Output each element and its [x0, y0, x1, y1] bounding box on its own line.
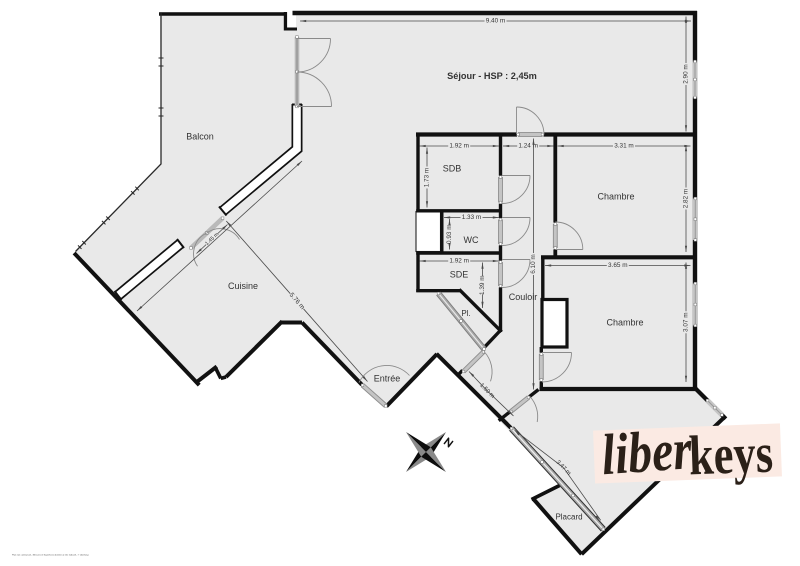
- svg-text:2.82 m: 2.82 m: [683, 189, 690, 209]
- svg-text:Placard: Placard: [555, 513, 582, 522]
- svg-text:6.10 m: 6.10 m: [530, 254, 537, 274]
- svg-text:3.31 m: 3.31 m: [614, 143, 634, 150]
- svg-text:Chambre: Chambre: [597, 192, 634, 202]
- svg-text:1.73 m: 1.73 m: [424, 168, 431, 188]
- svg-text:WC: WC: [464, 235, 479, 245]
- svg-text:3.07 m: 3.07 m: [683, 312, 690, 332]
- svg-text:SDB: SDB: [443, 164, 462, 174]
- svg-text:1.24 m: 1.24 m: [518, 143, 538, 150]
- svg-text:liber: liber: [599, 416, 694, 487]
- svg-text:0.93 m: 0.93 m: [446, 224, 453, 244]
- svg-text:1.33 m: 1.33 m: [462, 214, 482, 221]
- svg-text:keys: keys: [688, 423, 774, 488]
- svg-text:Chambre: Chambre: [606, 318, 643, 328]
- svg-text:3.65 m: 3.65 m: [608, 262, 628, 269]
- svg-text:Séjour - HSP : 2,45m: Séjour - HSP : 2,45m: [447, 71, 537, 81]
- svg-text:9.40 m: 9.40 m: [486, 18, 506, 25]
- svg-text:1.92 m: 1.92 m: [449, 258, 469, 265]
- svg-text:Entrée: Entrée: [374, 374, 401, 384]
- svg-text:Plan non contractuel - Mesures: Plan non contractuel - Mesures et Superf…: [12, 554, 89, 557]
- svg-text:2.90 m: 2.90 m: [683, 64, 690, 84]
- svg-text:Balcon: Balcon: [186, 132, 214, 142]
- svg-text:1.39 m: 1.39 m: [479, 275, 486, 295]
- svg-text:Pl.: Pl.: [461, 309, 470, 318]
- svg-text:SDE: SDE: [450, 270, 469, 280]
- svg-text:Cuisine: Cuisine: [228, 281, 258, 291]
- svg-text:Couloir: Couloir: [509, 292, 538, 302]
- svg-text:1.92 m: 1.92 m: [449, 143, 469, 150]
